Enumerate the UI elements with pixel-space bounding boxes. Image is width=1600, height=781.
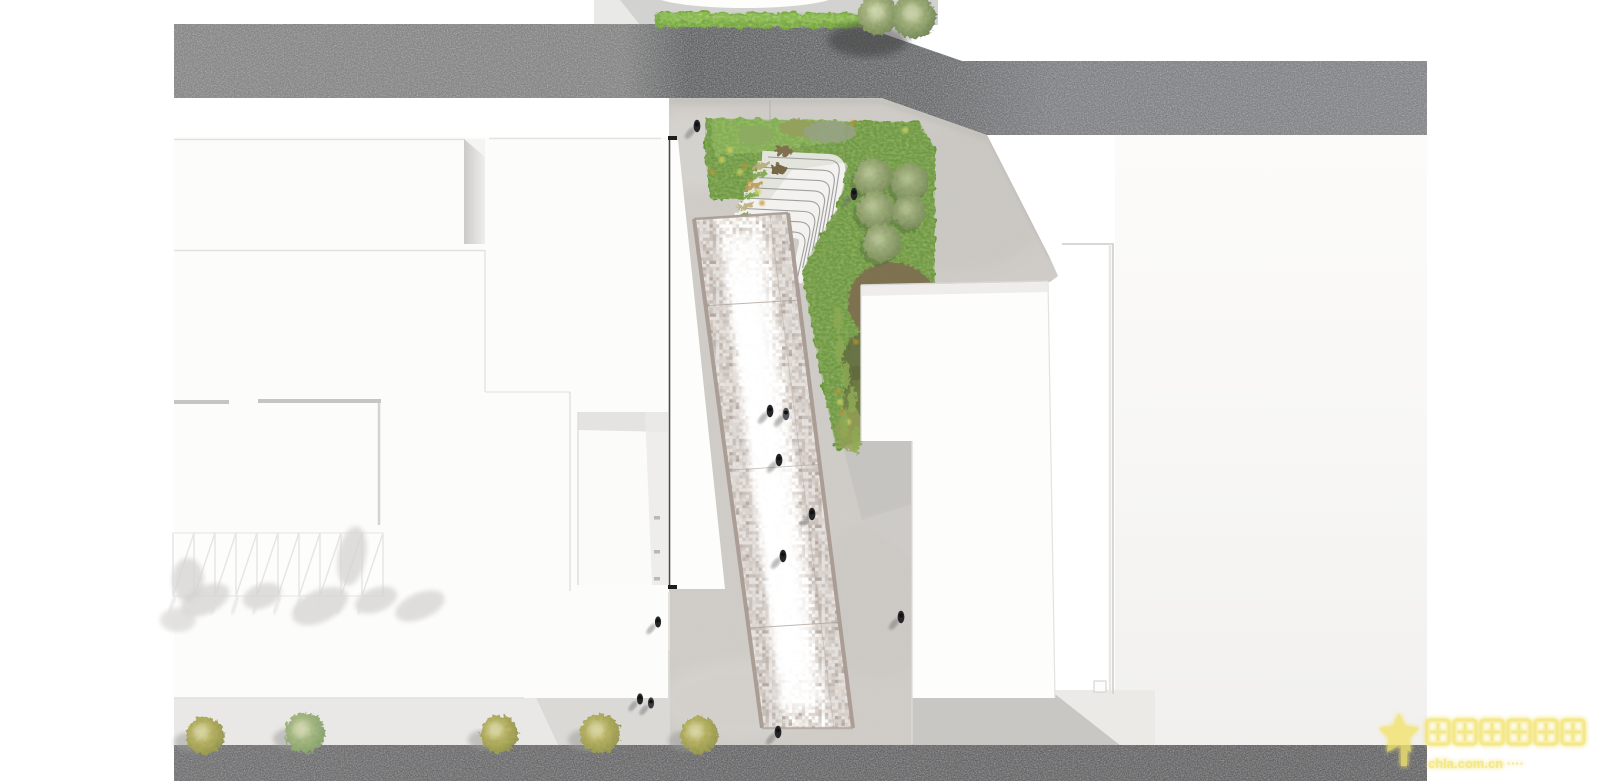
svg-text:chla.com.cn ····: chla.com.cn ···· [1428,756,1524,771]
